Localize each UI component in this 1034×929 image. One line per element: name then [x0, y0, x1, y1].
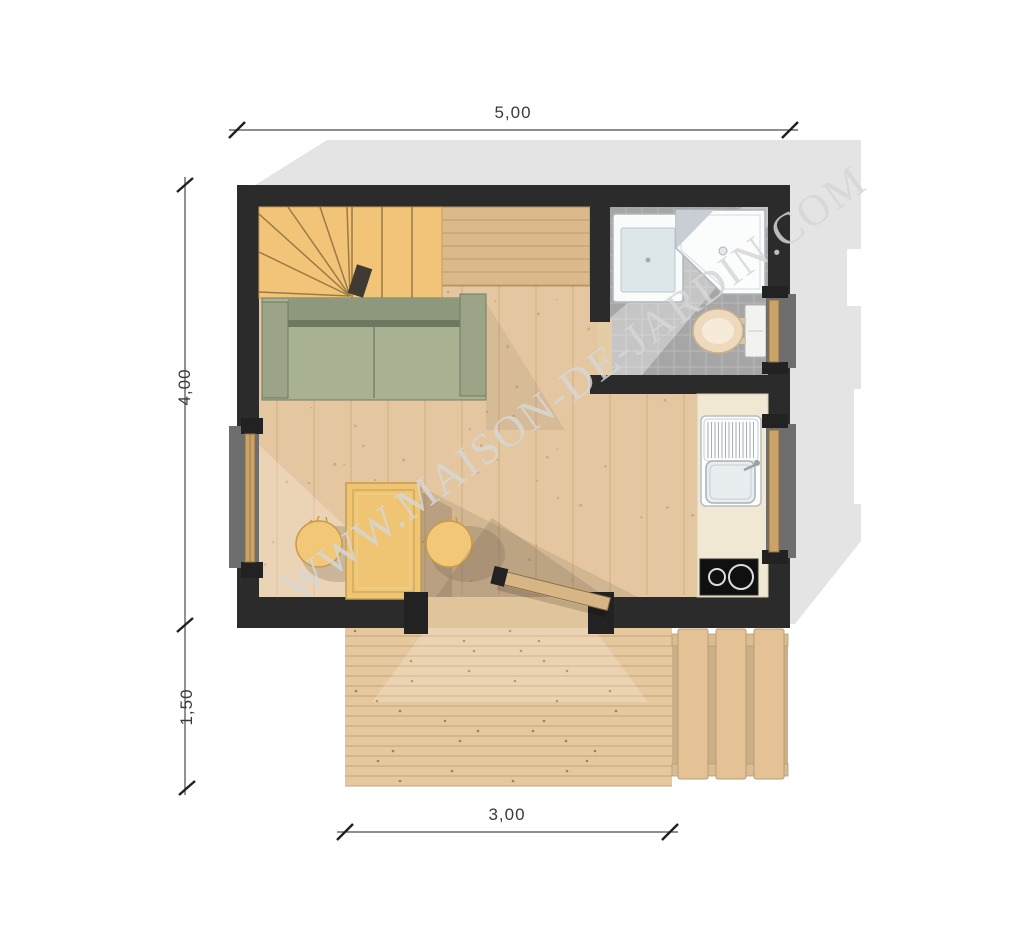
- floor-plan-page: WWW.MAISON-DE-JARDIN.COM 5,00 4,00 1,50 …: [0, 0, 1034, 929]
- bathroom-wall-bottom: [590, 375, 790, 394]
- kitchen-sink: [701, 416, 761, 506]
- dimension-terrace-depth: 1,50: [177, 654, 197, 760]
- window-bathroom: [762, 286, 796, 374]
- dimension-terrace-width: 3,00: [449, 805, 565, 825]
- toilet: [693, 305, 766, 357]
- bathroom: [590, 207, 790, 394]
- sofa: [262, 294, 486, 400]
- terrace-deck: [345, 626, 672, 786]
- kitchen: [697, 394, 768, 597]
- cooktop: [700, 559, 758, 595]
- bathroom-partition-wall: [590, 207, 610, 322]
- window-left: [229, 418, 263, 578]
- chair: [296, 521, 342, 567]
- loft-floor-strip: [442, 207, 590, 286]
- window-kitchen: [762, 414, 796, 564]
- washbasin: [613, 214, 683, 302]
- floor-plan-drawing: [0, 0, 1034, 929]
- staircase: [259, 207, 442, 298]
- dimension-total-depth: 4,00: [175, 334, 195, 440]
- dimension-total-width: 5,00: [455, 103, 571, 123]
- terrace-steps: [672, 629, 788, 779]
